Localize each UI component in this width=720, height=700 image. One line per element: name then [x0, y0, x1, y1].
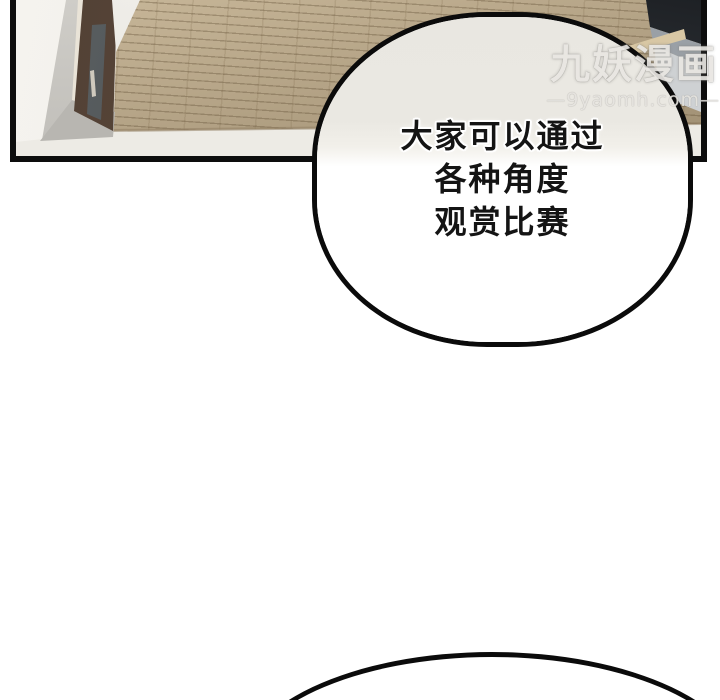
speech-line-2: 各种角度 [400, 158, 604, 201]
speech-line-1: 大家可以通过 [400, 115, 604, 158]
speech-bubble-top: 大家可以通过 各种角度 观赏比赛 [312, 12, 693, 347]
speech-line-3: 观赏比赛 [400, 201, 604, 244]
speech-bubble-bottom [238, 652, 720, 700]
speech-text: 大家可以通过 各种角度 观赏比赛 [400, 115, 604, 244]
comic-page: 大家可以通过 各种角度 观赏比赛 九妖漫画 —9yaomh.com— [0, 0, 720, 700]
